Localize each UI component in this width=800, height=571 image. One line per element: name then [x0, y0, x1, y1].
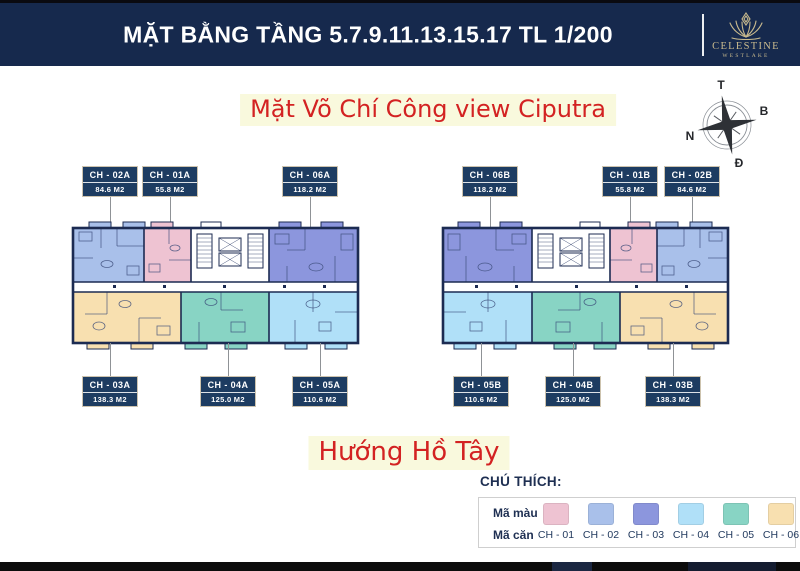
legend-unit-code: CH - 04 — [669, 529, 713, 541]
leader-line — [320, 343, 321, 376]
bottom-bar-segment — [688, 562, 776, 571]
compass-label-t: T — [717, 78, 725, 92]
unit-area: 118.2 M2 — [283, 183, 337, 194]
unit-area: 138.3 M2 — [83, 393, 137, 404]
unit-code: CH - 05B — [454, 379, 508, 393]
unit-label-ch-01a: CH - 01A 55.8 M2 — [142, 166, 198, 197]
unit-label-ch-06a: CH - 06A 118.2 M2 — [282, 166, 338, 197]
color-swatch-ch-05 — [723, 503, 749, 525]
color-swatch-ch-06 — [768, 503, 794, 525]
compass-label-b: B — [760, 104, 769, 118]
brand-name: CELESTINE — [712, 41, 780, 52]
legend-unit-row-label: Mã căn — [493, 528, 534, 542]
unit-area: 84.6 M2 — [83, 183, 137, 194]
leader-line — [228, 343, 229, 376]
leader-line — [573, 343, 574, 376]
unit-code: CH - 02B — [665, 169, 719, 183]
compass-icon: T B N Đ — [682, 78, 774, 170]
unit-area: 110.6 M2 — [454, 393, 508, 404]
leader-line — [673, 343, 674, 376]
unit-area: 84.6 M2 — [665, 183, 719, 194]
lake-side-label: Hướng Hồ Tây — [308, 436, 509, 470]
unit-label-ch-05b: CH - 05B 110.6 M2 — [453, 376, 509, 407]
unit-label-ch-04b: CH - 04B 125.0 M2 — [545, 376, 601, 407]
floor-plan-drawing-a — [73, 222, 358, 351]
unit-code: CH - 03B — [646, 379, 700, 393]
unit-label-ch-04a: CH - 04A 125.0 M2 — [200, 376, 256, 407]
bottom-bar-segment — [552, 562, 592, 571]
unit-code: CH - 02A — [83, 169, 137, 183]
floor-plan-a: CH - 02A 84.6 M2 CH - 01A 55.8 M2 CH - 0… — [60, 160, 400, 410]
unit-code: CH - 01B — [603, 169, 657, 183]
unit-area: 138.3 M2 — [646, 393, 700, 404]
unit-code: CH - 05A — [293, 379, 347, 393]
unit-label-ch-05a: CH - 05A 110.6 M2 — [292, 376, 348, 407]
leader-line — [481, 343, 482, 376]
brand-separator — [702, 14, 704, 56]
street-side-label: Mặt Võ Chí Công view Ciputra — [240, 94, 616, 126]
unit-code: CH - 04A — [201, 379, 255, 393]
legend-unit-code: CH - 06 — [759, 529, 800, 541]
unit-area: 55.8 M2 — [143, 183, 197, 194]
unit-area: 125.0 M2 — [201, 393, 255, 404]
legend-color-row-label: Mã màu — [493, 506, 538, 520]
page-title: MẶT BẰNG TẦNG 5.7.9.11.13.15.17 TL 1/200 — [123, 21, 613, 48]
lotus-icon — [726, 12, 766, 40]
unit-label-ch-03b: CH - 03B 138.3 M2 — [645, 376, 701, 407]
legend-unit-code: CH - 02 — [579, 529, 623, 541]
unit-code: CH - 01A — [143, 169, 197, 183]
brand-logo: CELESTINE WESTLAKE — [708, 6, 784, 64]
unit-code: CH - 04B — [546, 379, 600, 393]
unit-code: CH - 06B — [463, 169, 517, 183]
unit-area: 110.6 M2 — [293, 393, 347, 404]
page-root: { "header": { "title": "MẶT BẰNG TẦNG 5.… — [0, 0, 800, 571]
floor-plan-b: CH - 06B 118.2 M2 CH - 01B 55.8 M2 CH - … — [430, 160, 770, 410]
color-swatch-ch-03 — [633, 503, 659, 525]
compass-label-n: N — [686, 129, 695, 143]
legend-title: CHÚ THÍCH: — [480, 474, 562, 489]
floor-plan-drawing-b — [443, 222, 728, 351]
unit-code: CH - 06A — [283, 169, 337, 183]
unit-label-ch-03a: CH - 03A 138.3 M2 — [82, 376, 138, 407]
legend-unit-code: CH - 05 — [714, 529, 758, 541]
legend-unit-code: CH - 03 — [624, 529, 668, 541]
unit-label-ch-01b: CH - 01B 55.8 M2 — [602, 166, 658, 197]
header-bar: MẶT BẰNG TẦNG 5.7.9.11.13.15.17 TL 1/200… — [0, 3, 800, 66]
brand-subtitle: WESTLAKE — [722, 53, 769, 59]
unit-area: 55.8 M2 — [603, 183, 657, 194]
color-swatch-ch-02 — [588, 503, 614, 525]
color-swatch-ch-04 — [678, 503, 704, 525]
legend-box: Mã màu Mã căn CH - 01 CH - 02 CH - 03 CH… — [478, 497, 796, 548]
unit-code: CH - 03A — [83, 379, 137, 393]
unit-label-ch-02b: CH - 02B 84.6 M2 — [664, 166, 720, 197]
bottom-bar — [0, 562, 800, 571]
unit-area: 125.0 M2 — [546, 393, 600, 404]
unit-label-ch-06b: CH - 06B 118.2 M2 — [462, 166, 518, 197]
leader-line — [110, 343, 111, 376]
unit-area: 118.2 M2 — [463, 183, 517, 194]
legend-unit-code: CH - 01 — [534, 529, 578, 541]
unit-label-ch-02a: CH - 02A 84.6 M2 — [82, 166, 138, 197]
color-swatch-ch-01 — [543, 503, 569, 525]
